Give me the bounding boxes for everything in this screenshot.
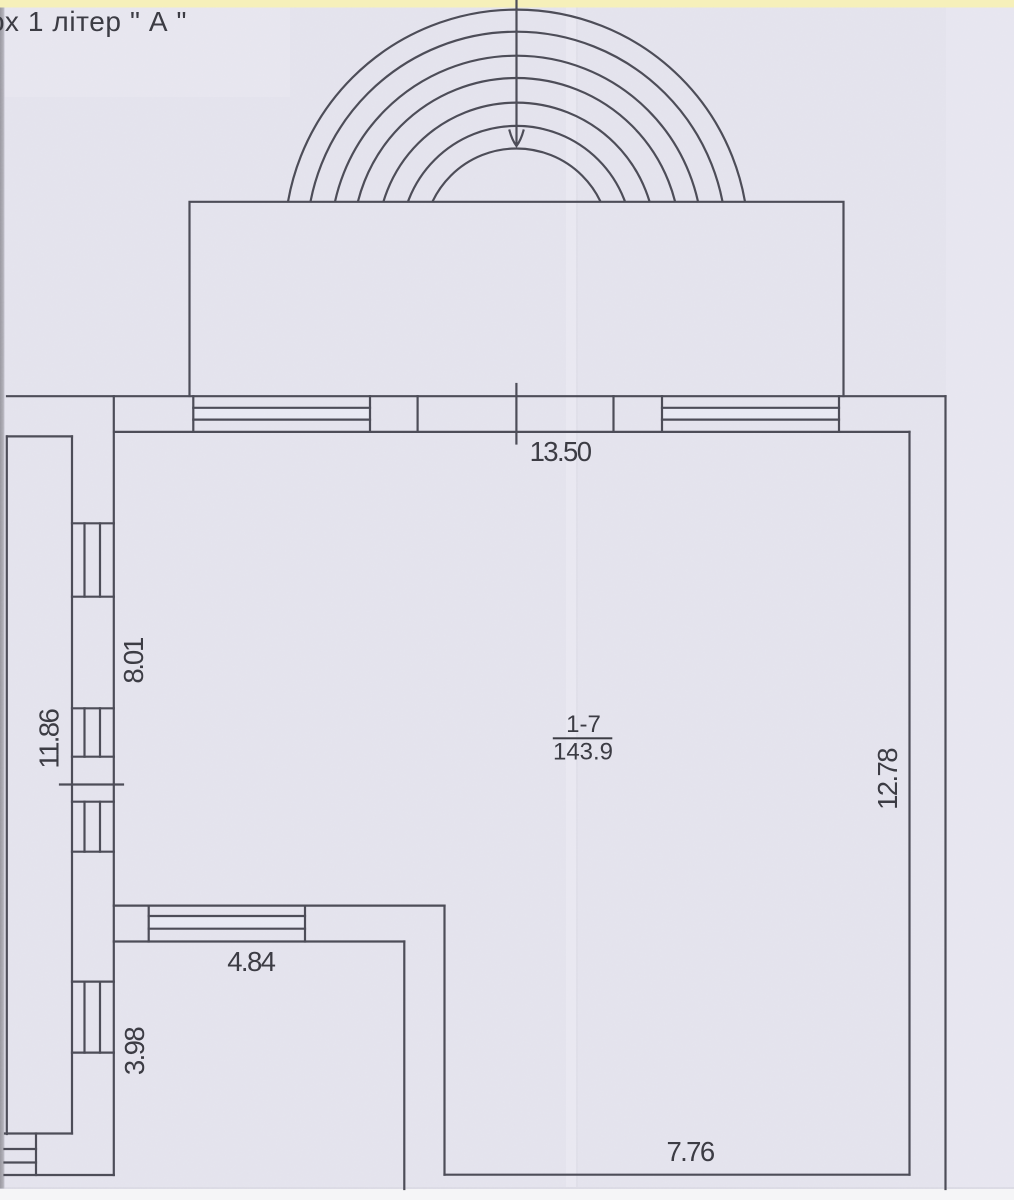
- svg-text:4.84: 4.84: [227, 946, 275, 977]
- svg-text:13.50: 13.50: [530, 436, 592, 467]
- svg-text:3.98: 3.98: [119, 1027, 150, 1075]
- svg-text:1-7: 1-7: [566, 711, 601, 738]
- svg-text:ох 1 літер " А ": ох 1 літер " А ": [0, 6, 187, 37]
- svg-text:7.76: 7.76: [666, 1136, 714, 1167]
- svg-text:8.01: 8.01: [118, 638, 149, 684]
- svg-text:143.9: 143.9: [553, 739, 613, 766]
- svg-text:12.78: 12.78: [872, 748, 903, 810]
- svg-text:11.86: 11.86: [34, 709, 65, 769]
